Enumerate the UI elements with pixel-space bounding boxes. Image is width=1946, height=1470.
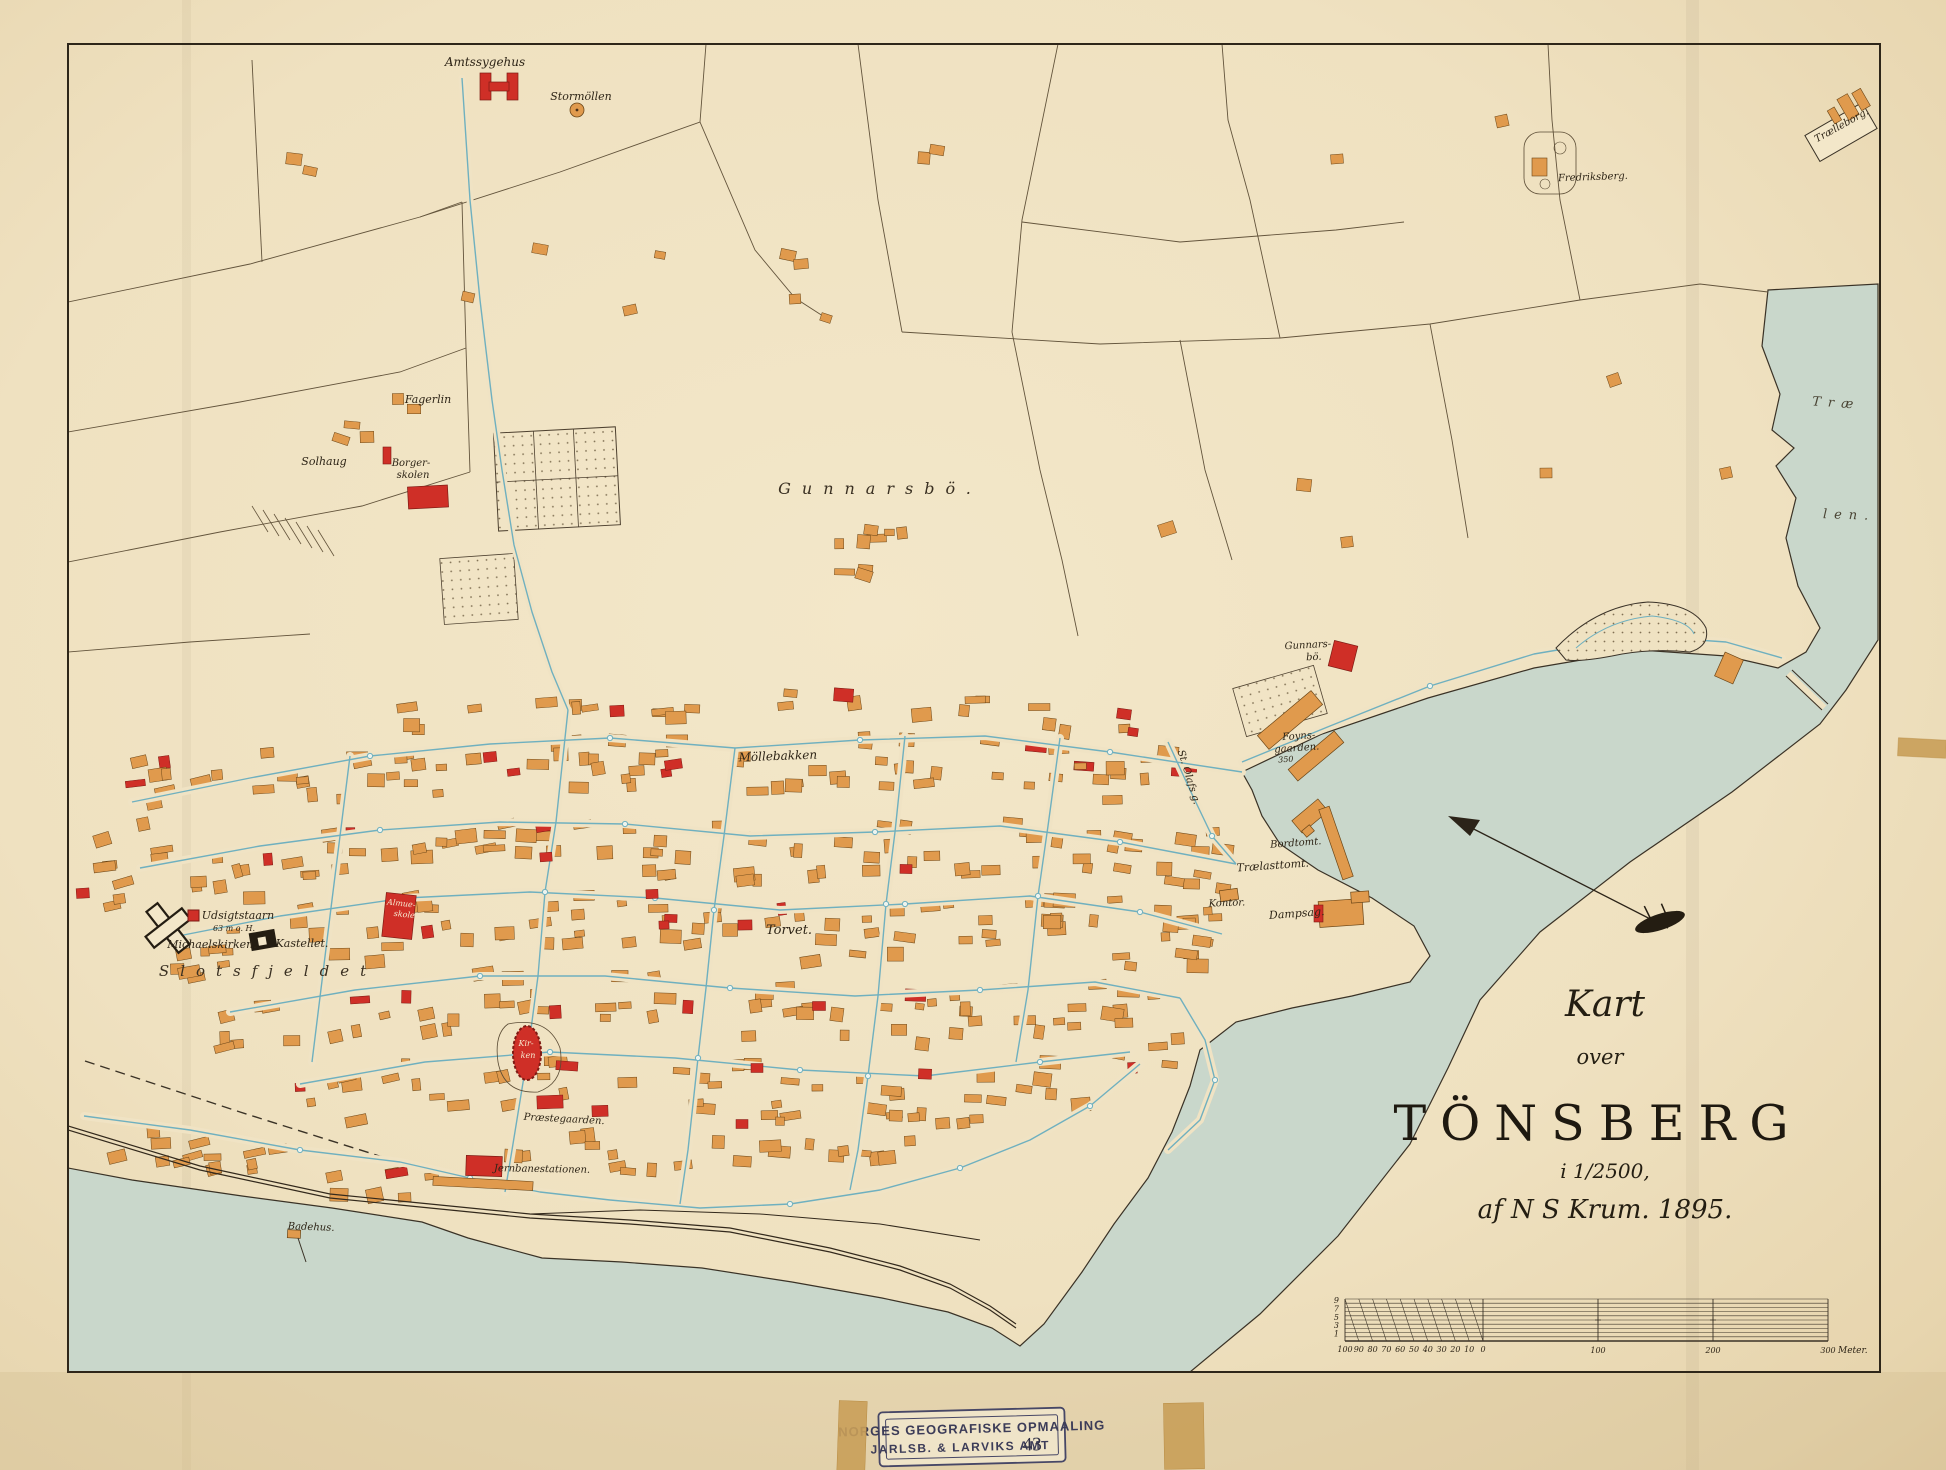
tape-bottom-right bbox=[1163, 1403, 1204, 1470]
label-mollebakken: Möllebakken bbox=[737, 748, 817, 765]
scanned-map-sheet: AmtssygehusStormöllenFagerlinSolhaugBorg… bbox=[0, 0, 1946, 1470]
scalebar-left-label: 10 bbox=[1464, 1345, 1474, 1354]
label-gunnarsbo-area: Gunnarsbö. bbox=[778, 479, 982, 498]
label-michaelskirken: Michaelskirken. bbox=[166, 938, 256, 951]
tape-bottom-left bbox=[837, 1401, 867, 1470]
scalebar-left-label: 60 bbox=[1395, 1345, 1405, 1354]
scalebar-left-label: 100 bbox=[1337, 1345, 1352, 1354]
label-stormollen: Stormöllen bbox=[550, 90, 612, 103]
orchard-plot bbox=[440, 553, 518, 624]
label-kontor: Kontor. bbox=[1207, 897, 1245, 909]
label-amtssygehus: Amtssygehus bbox=[444, 55, 525, 69]
title-over: over bbox=[1577, 1045, 1626, 1069]
scalebar-left-label: 50 bbox=[1409, 1345, 1419, 1354]
scalebar-main-label: 100 bbox=[1590, 1346, 1605, 1355]
udsigtstaarn-tower bbox=[188, 910, 199, 921]
scalebar-left-label: 0 bbox=[1480, 1345, 1485, 1354]
title-kart: Kart bbox=[1564, 984, 1646, 1025]
scalebar-left-label: 80 bbox=[1368, 1345, 1378, 1354]
borgerskolen-annex bbox=[383, 447, 391, 464]
title-city: TÖNSBERG bbox=[1393, 1095, 1802, 1152]
label-jernbanestationen: Jernbanestationen. bbox=[492, 1163, 590, 1176]
stamp-number: 43 bbox=[1022, 1434, 1042, 1455]
label-udsigt-height: 63 m o. H. bbox=[213, 924, 255, 933]
label-borgerskolen-1: Borger- bbox=[391, 458, 431, 469]
label-gunnarsbo-farm-2: bö. bbox=[1306, 652, 1322, 664]
label-udsigtstaarn: Udsigtstaarn bbox=[202, 909, 274, 922]
scalebar-left-label: 30 bbox=[1437, 1345, 1447, 1354]
label-kastellet: Kastellet. bbox=[275, 937, 329, 950]
label-fagerlin: Fagerlin bbox=[404, 393, 451, 406]
label-kirken-1: Kir- bbox=[517, 1039, 533, 1048]
label-foynsgaarden-nr: 350 bbox=[1278, 754, 1294, 764]
title-scale: i 1/2500, bbox=[1560, 1159, 1649, 1183]
scalebar-unit: Meter. bbox=[1837, 1346, 1868, 1356]
label-borgerskolen-2: skolen bbox=[397, 470, 430, 481]
scalebar-left-label: 90 bbox=[1354, 1345, 1364, 1354]
label-kirken-2: ken bbox=[521, 1051, 536, 1060]
scalebar-row-label: 1 bbox=[1334, 1330, 1339, 1339]
map-canvas: AmtssygehusStormöllenFagerlinSolhaugBorg… bbox=[0, 0, 1946, 1470]
scalebar-main-label: 300 bbox=[1820, 1346, 1835, 1355]
scalebar-left-label: 40 bbox=[1422, 1345, 1433, 1354]
tape-right-edge bbox=[1898, 738, 1946, 758]
label-badehus: Badehus. bbox=[286, 1221, 334, 1234]
stormollen-mill bbox=[570, 103, 584, 117]
label-torvet: Torvet. bbox=[766, 923, 812, 938]
label-traelen-2: len. bbox=[1823, 507, 1876, 524]
label-slotsfjeldet: Slotsfjeldet bbox=[159, 962, 377, 980]
title-author: af N S Krum. 1895. bbox=[1478, 1195, 1733, 1225]
borgerskolen-building bbox=[407, 485, 448, 509]
label-solhaug: Solhaug bbox=[301, 455, 346, 468]
scalebar-left-label: 20 bbox=[1449, 1345, 1460, 1354]
scalebar-left-label: 70 bbox=[1381, 1345, 1391, 1354]
scalebar-main-label: 200 bbox=[1704, 1346, 1720, 1355]
